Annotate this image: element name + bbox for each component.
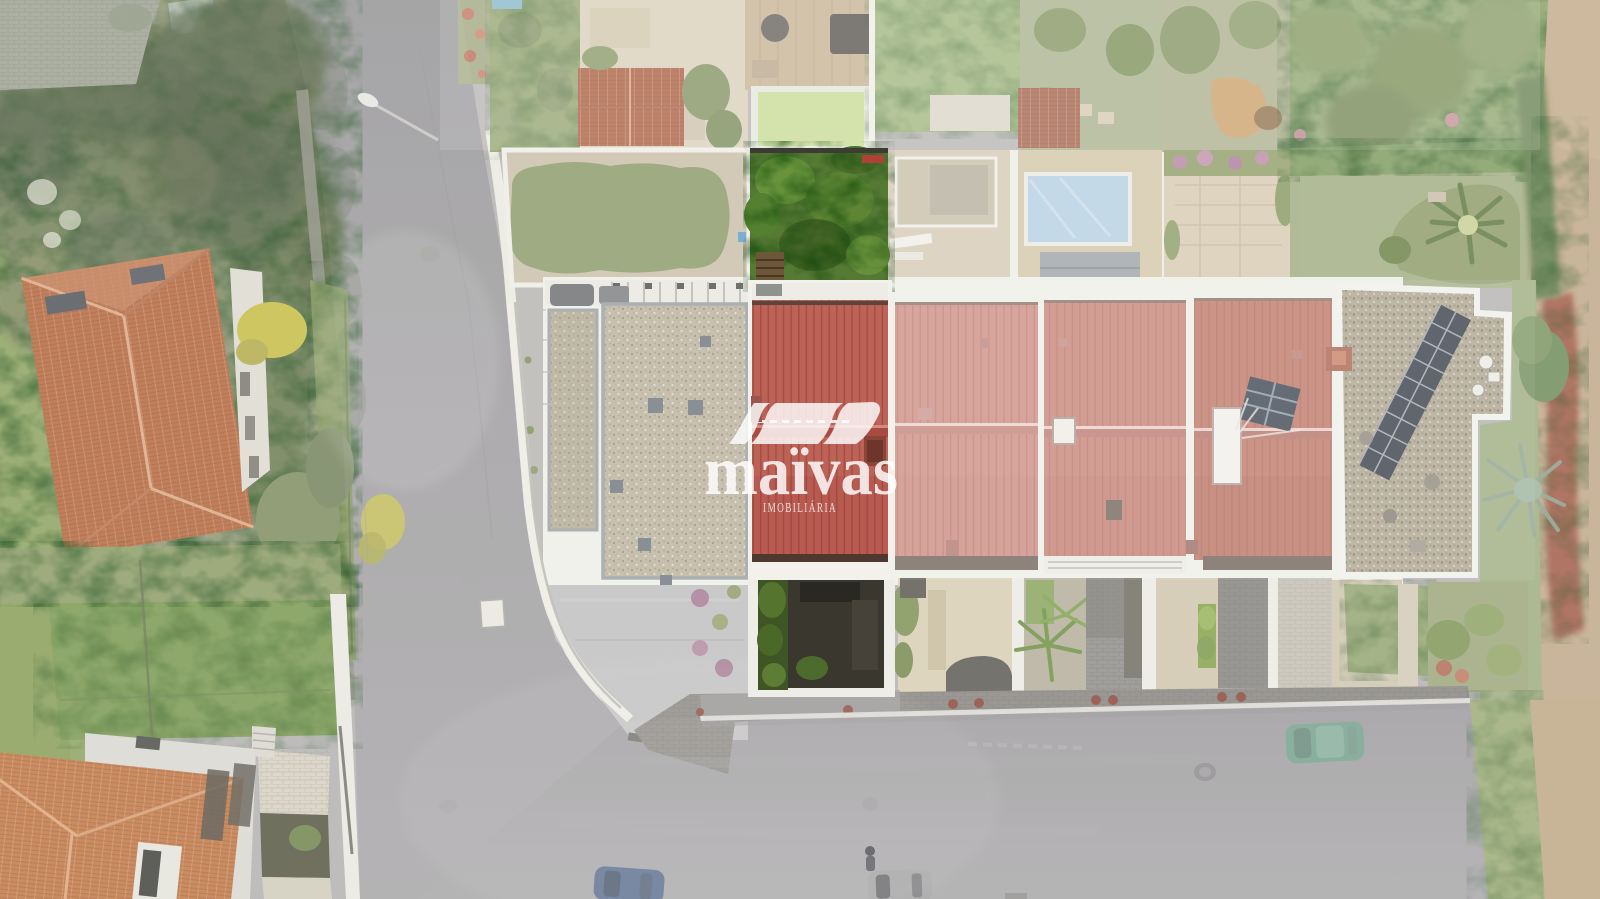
- svg-text:IMOBILIÁRIA: IMOBILIÁRIA: [763, 499, 837, 516]
- svg-text:maïvas: maïvas: [704, 433, 898, 510]
